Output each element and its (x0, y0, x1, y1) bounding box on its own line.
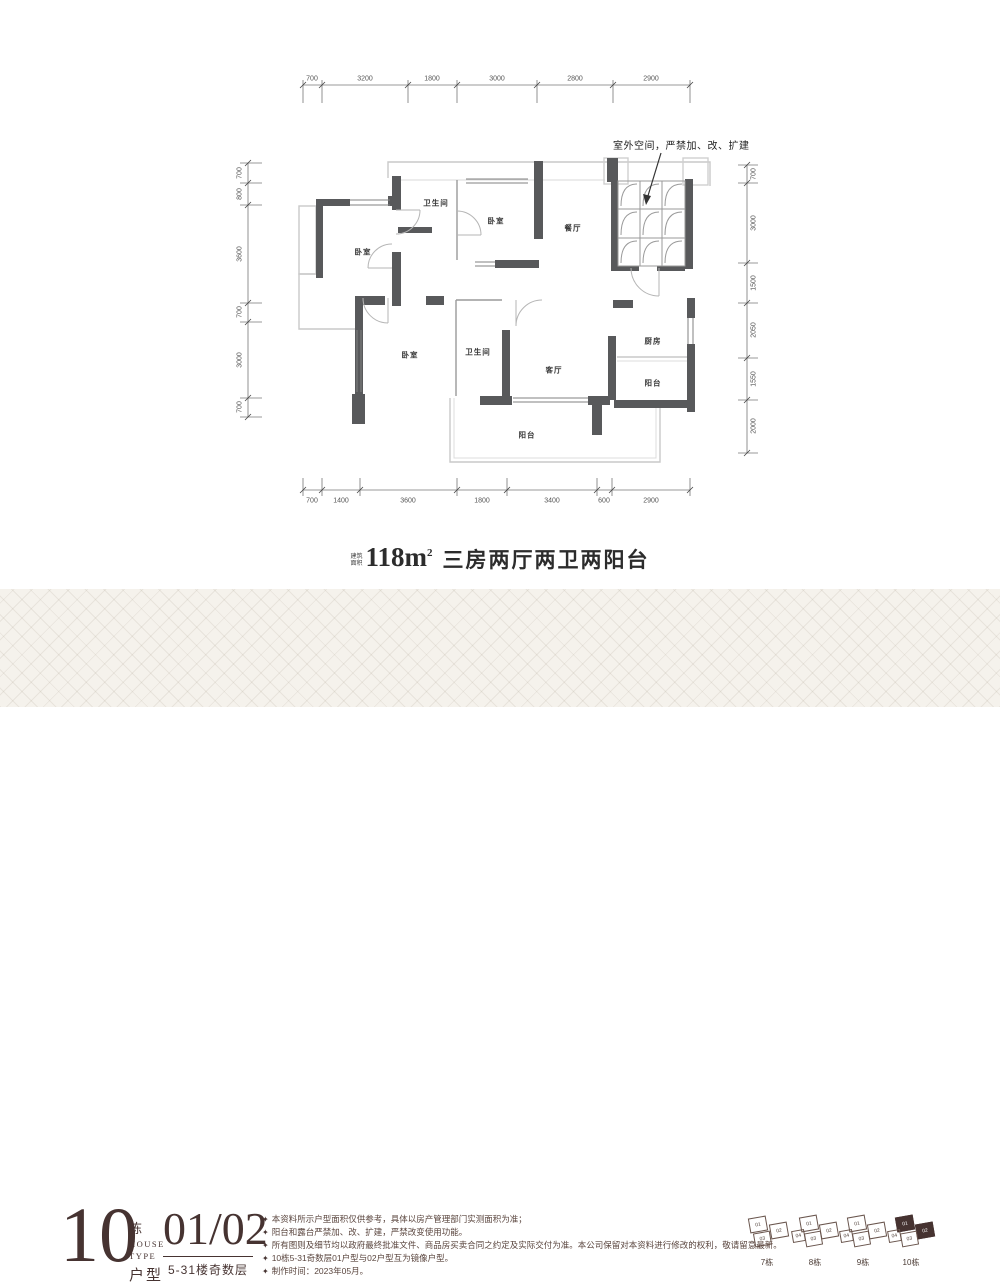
building-diagram-10: 01 02 04 03 10栋 (888, 1216, 934, 1268)
unit-box: 03 (852, 1231, 871, 1248)
dim-left-0: 700 (237, 167, 244, 179)
type-label: TYPE (129, 1251, 165, 1261)
block-number: 10 (60, 1197, 138, 1273)
footer-band: 10 栋 HOUSE TYPE 户型 01/02 5-31楼奇数层 ✦ 本资料所… (0, 589, 1000, 707)
floors-label: 5-31楼奇数层 (163, 1261, 253, 1278)
dim-bottom-2: 3600 (400, 498, 416, 505)
dim-bottom-3: 1800 (474, 498, 490, 505)
dim-top-1: 3200 (357, 76, 373, 83)
note-text: 本资料所示户型面积仅供参考，具体以房产管理部门实测面积为准； (272, 1213, 527, 1226)
area-value: 118m (365, 544, 427, 571)
building-caption: 10栋 (888, 1257, 934, 1268)
windows (350, 179, 696, 402)
room-label-balcony-right: 阳台 (645, 378, 662, 389)
room-label-bedroom-tm: 卧室 (488, 216, 505, 227)
dim-bottom-1: 1400 (333, 498, 349, 505)
annotation-arrow (643, 153, 661, 205)
huxing-label: 户型 (129, 1264, 165, 1285)
dim-left-3: 700 (237, 306, 244, 318)
dim-top-5: 2900 (643, 76, 659, 83)
unit-numbers-block: 01/02 5-31楼奇数层 (163, 1204, 253, 1278)
room-label-bath-top: 卫生间 (423, 198, 449, 209)
unit-box: 03 (900, 1231, 919, 1248)
block-labels: 栋 HOUSE TYPE 户型 (129, 1218, 165, 1285)
diamond-bullet-icon: ✦ (262, 1213, 269, 1226)
building-caption: 8栋 (792, 1257, 838, 1268)
room-label-balcony-bottom: 阳台 (519, 430, 536, 441)
room-label-bedroom-ll: 卧室 (402, 350, 419, 361)
building-locator-diagrams: 01 02 03 7栋 01 02 04 03 8栋 01 02 04 03 9… (744, 1216, 936, 1268)
note-line: ✦ 10栋5-31奇数层01户型与02户型互为镜像户型。 (262, 1252, 652, 1265)
unit-box: 03 (753, 1231, 772, 1248)
dim-left-2: 3600 (237, 246, 244, 262)
room-label-kitchen: 厨房 (645, 336, 662, 347)
building-caption: 7栋 (744, 1257, 790, 1268)
dim-right-1: 3000 (751, 215, 758, 231)
room-label-bedroom-tl: 卧室 (355, 247, 372, 258)
note-text: 阳台和露台严禁加、改、扩建，严禁改变使用功能。 (272, 1226, 468, 1239)
building-diagram-9: 01 02 04 03 9栋 (840, 1216, 886, 1268)
dim-bottom-4: 3400 (544, 498, 560, 505)
dim-top-0: 700 (306, 76, 318, 83)
room-label-bath-low: 卫生间 (465, 347, 491, 358)
unit-box: 02 (769, 1222, 789, 1240)
house-label: HOUSE (129, 1239, 165, 1249)
dim-left-1: 800 (237, 188, 244, 200)
note-line: ✦ 本资料所示户型面积仅供参考，具体以房产管理部门实测面积为准； (262, 1213, 652, 1226)
diamond-bullet-icon: ✦ (262, 1252, 269, 1265)
unit-box: 03 (804, 1231, 823, 1248)
dim-right-5: 2000 (751, 418, 758, 434)
dim-bottom-6: 2900 (643, 498, 659, 505)
dim-left-4: 3000 (237, 352, 244, 368)
note-text: 所有图则及细节均以政府最终批准文件、商品房买卖合同之约定及实际交付为准。本公司保… (272, 1239, 782, 1252)
dim-top-3: 3000 (489, 76, 505, 83)
dim-bottom-0: 700 (306, 498, 318, 505)
thin-partitions (456, 180, 502, 396)
dim-left-5: 700 (237, 401, 244, 413)
note-line: ✦ 所有图则及细节均以政府最终批准文件、商品房买卖合同之约定及实际交付为准。本公… (262, 1239, 652, 1252)
block-dong-label: 栋 (129, 1218, 165, 1237)
dim-right-0: 700 (751, 168, 758, 180)
note-text: 制作时间：2023年05月。 (272, 1265, 368, 1278)
dim-right-3: 2050 (751, 322, 758, 338)
area-prefix: 建筑 面积 (350, 554, 363, 567)
note-line: ✦ 阳台和露台严禁加、改、扩建，严禁改变使用功能。 (262, 1226, 652, 1239)
area-caption: 建筑 面积 118m 2 三房两厅两卫两阳台 (350, 544, 649, 571)
dim-bottom-5: 600 (598, 498, 610, 505)
layout-description: 三房两厅两卫两阳台 (443, 550, 650, 571)
outdoor-grid (618, 181, 685, 266)
diamond-bullet-icon: ✦ (262, 1239, 269, 1252)
room-label-living: 客厅 (546, 365, 563, 376)
note-text: 10栋5-31奇数层01户型与02户型互为镜像户型。 (272, 1252, 453, 1265)
building-diagram-7: 01 02 03 7栋 (744, 1216, 790, 1268)
area-superscript: 2 (427, 548, 433, 559)
floorplan-page: 700 3200 1800 3000 2800 2900 700 1400 36… (0, 0, 1000, 707)
building-caption: 9栋 (840, 1257, 886, 1268)
diamond-bullet-icon: ✦ (262, 1265, 269, 1278)
diamond-bullet-icon: ✦ (262, 1226, 269, 1239)
unit-numbers: 01/02 (163, 1204, 253, 1257)
dim-right-2: 1500 (751, 275, 758, 291)
outdoor-space-annotation: 室外空间，严禁加、改、扩建 (613, 137, 750, 152)
disclaimer-notes: ✦ 本资料所示户型面积仅供参考，具体以房产管理部门实测面积为准； ✦ 阳台和露台… (262, 1213, 652, 1278)
dim-right-4: 1550 (751, 371, 758, 387)
note-line: ✦ 制作时间：2023年05月。 (262, 1265, 652, 1278)
building-diagram-8: 01 02 04 03 8栋 (792, 1216, 838, 1268)
room-label-dining: 餐厅 (565, 223, 582, 234)
dim-top-4: 2800 (567, 76, 583, 83)
dim-top-2: 1800 (424, 76, 440, 83)
